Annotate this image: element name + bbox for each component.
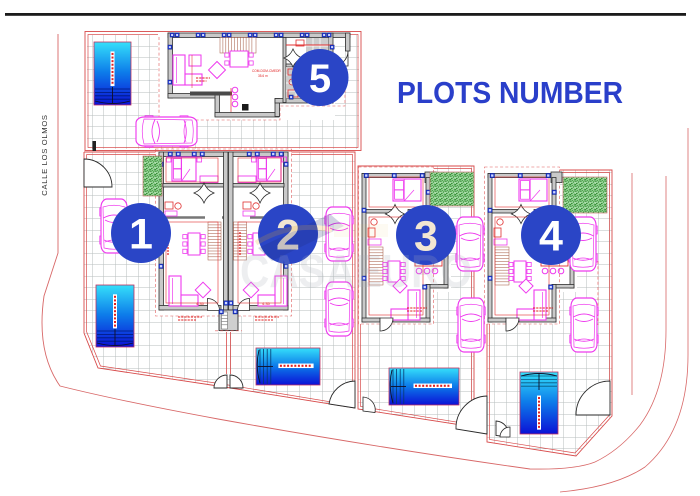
svg-text:CALLE LOS OLMOS: CALLE LOS OLMOS — [40, 114, 49, 195]
svg-text:5: 5 — [309, 57, 331, 101]
svg-text:4: 4 — [539, 212, 563, 260]
svg-text:1: 1 — [129, 210, 153, 258]
svg-text:4.35: 4.35 — [262, 301, 271, 306]
svg-text:PLOTS NUMBER: PLOTS NUMBER — [397, 75, 623, 110]
svg-text:4.35: 4.35 — [196, 301, 205, 306]
svg-text:COM-DOM-CMEDR: COM-DOM-CMEDR — [252, 69, 281, 73]
svg-text:35.6 m: 35.6 m — [258, 74, 268, 78]
